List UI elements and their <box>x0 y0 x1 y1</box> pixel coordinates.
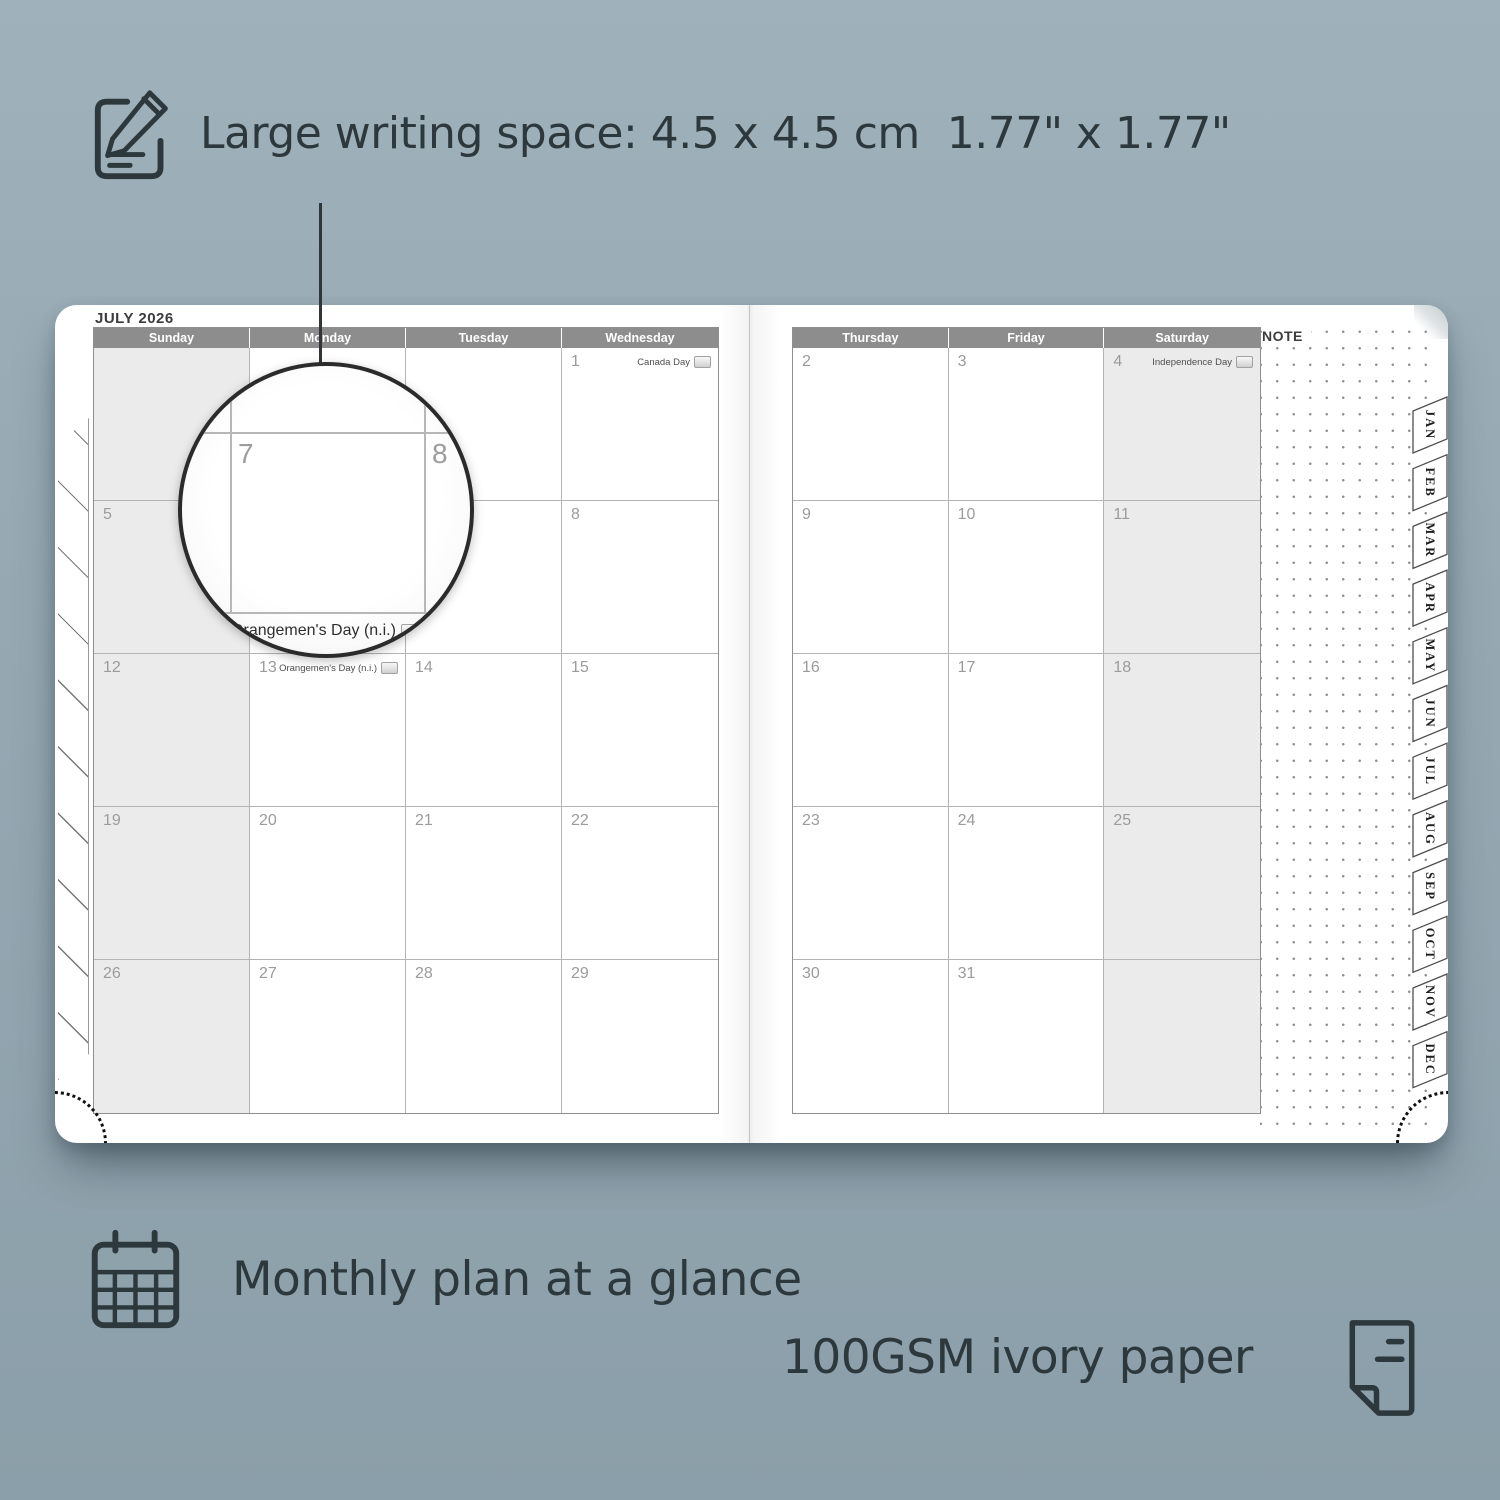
month-tab-label: SEP <box>1423 872 1437 901</box>
day-number: 28 <box>415 965 433 983</box>
day-number: 22 <box>571 812 589 830</box>
calendar-cell-25: 25 <box>1104 807 1260 960</box>
day-number: 13 <box>259 659 277 677</box>
calendar-cell-30: 30 <box>793 960 949 1113</box>
calendar-grid-right-page: ThursdayFridaySaturday234Independence Da… <box>792 327 1261 1114</box>
month-tab-label: JUN <box>1423 698 1437 728</box>
calendar-cell-3: 3 <box>949 348 1105 501</box>
calendar-cell-9: 9 <box>793 501 949 654</box>
calendar-cell-13: 13Orangemen's Day (n.i.) <box>250 654 406 807</box>
day-number: 5 <box>103 506 112 524</box>
day-number: 18 <box>1113 659 1131 677</box>
month-tab-label: AUG <box>1423 812 1437 846</box>
day-number: 12 <box>103 659 121 677</box>
day-header-monday: Monday <box>250 328 406 348</box>
calendar-cell-21: 21 <box>406 807 562 960</box>
calendar-grid-icon <box>85 1225 185 1333</box>
calendar-cell-14: 14 <box>406 654 562 807</box>
day-number: 16 <box>802 659 820 677</box>
magnified-cell-bottom-border <box>182 612 470 614</box>
holiday-text: Independence Day <box>1152 357 1232 368</box>
magnified-cell-top-border <box>182 432 470 434</box>
calendar-cell-2: 2 <box>793 348 949 501</box>
flag-badge-icon <box>401 624 421 638</box>
month-tab-label: JAN <box>1423 410 1437 440</box>
day-header-wednesday: Wednesday <box>562 328 718 348</box>
calendar-cell-26: 26 <box>94 960 250 1113</box>
calendar-cell-22: 22 <box>562 807 718 960</box>
day-number: 10 <box>958 506 976 524</box>
flag-badge-icon <box>694 356 711 368</box>
day-number: 31 <box>958 965 976 983</box>
flag-badge-icon <box>381 662 398 674</box>
feature-paper-text: 100GSM ivory paper <box>782 1330 1253 1385</box>
calendar-cell-23: 23 <box>793 807 949 960</box>
day-number: 21 <box>415 812 433 830</box>
paper-sheet-icon <box>1338 1312 1426 1424</box>
month-tab-label: APR <box>1423 582 1437 614</box>
magnified-holiday-text: Orangemen's Day (n.i.) <box>231 622 396 640</box>
calendar-cell-19: 19 <box>94 807 250 960</box>
calendar-cell-17: 17 <box>949 654 1105 807</box>
holiday-text: Canada Day <box>637 357 690 368</box>
day-number: 20 <box>259 812 277 830</box>
day-number: 9 <box>802 506 811 524</box>
day-header-saturday: Saturday <box>1104 328 1260 348</box>
day-number: 8 <box>571 506 580 524</box>
day-header-thursday: Thursday <box>793 328 949 348</box>
headline-writing-space: Large writing space: 4.5 x 4.5 cm 1.77" … <box>200 108 1231 159</box>
magnifier-circle: 7 8 Orangemen's Day (n.i.) <box>178 362 474 658</box>
magnified-cell-right-border <box>424 386 426 612</box>
calendar-cell-31: 31 <box>949 960 1105 1113</box>
day-number: 25 <box>1113 812 1131 830</box>
calendar-cell-empty <box>1104 960 1260 1113</box>
calendar-cell-8: 8 <box>562 501 718 654</box>
day-number: 15 <box>571 659 589 677</box>
day-number: 3 <box>958 353 967 371</box>
calendar-cell-1: 1Canada Day <box>562 348 718 501</box>
day-number: 1 <box>571 353 580 371</box>
callout-connector-line <box>319 203 322 366</box>
page-edge-hatching <box>58 418 89 1080</box>
calendar-cell-27: 27 <box>250 960 406 1113</box>
day-number: 4 <box>1113 353 1122 371</box>
month-tab-label: MAR <box>1423 522 1437 558</box>
calendar-cell-16: 16 <box>793 654 949 807</box>
magnified-cell-left-border <box>230 386 232 612</box>
flag-badge-icon <box>1236 356 1253 368</box>
calendar-cell-20: 20 <box>250 807 406 960</box>
day-number: 14 <box>415 659 433 677</box>
day-number: 30 <box>802 965 820 983</box>
calendar-cell-24: 24 <box>949 807 1105 960</box>
day-header-tuesday: Tuesday <box>406 328 562 348</box>
day-number: 11 <box>1113 506 1130 524</box>
day-header-sunday: Sunday <box>94 328 250 348</box>
holiday-label: Orangemen's Day (n.i.) <box>279 662 398 674</box>
month-tab-label: OCT <box>1423 928 1437 961</box>
feature-monthly-plan-text: Monthly plan at a glance <box>232 1252 802 1307</box>
holiday-text: Orangemen's Day (n.i.) <box>279 663 377 674</box>
day-number: 26 <box>103 965 121 983</box>
calendar-cell-11: 11 <box>1104 501 1260 654</box>
day-number: 29 <box>571 965 589 983</box>
magnified-holiday-label: Orangemen's Day (n.i.) <box>182 622 470 640</box>
holiday-label: Canada Day <box>637 356 711 368</box>
month-tab-label: NOV <box>1423 985 1437 1019</box>
spine-shading <box>719 305 781 1143</box>
month-tab-label: JUL <box>1423 756 1437 786</box>
day-number: 23 <box>802 812 820 830</box>
calendar-cell-29: 29 <box>562 960 718 1113</box>
month-tab-label: DEC <box>1423 1043 1437 1075</box>
magnified-day-number: 7 <box>238 438 254 470</box>
calendar-cell-12: 12 <box>94 654 250 807</box>
day-number: 19 <box>103 812 121 830</box>
month-title: JULY 2026 <box>95 310 174 327</box>
month-tab-label: MAY <box>1423 638 1437 673</box>
calendar-cell-18: 18 <box>1104 654 1260 807</box>
note-label: NOTE <box>1262 328 1311 346</box>
day-number: 24 <box>958 812 976 830</box>
month-tab-label: FEB <box>1423 468 1437 498</box>
spine-line <box>749 305 750 1143</box>
day-number: 2 <box>802 353 811 371</box>
calendar-cell-10: 10 <box>949 501 1105 654</box>
calendar-cell-28: 28 <box>406 960 562 1113</box>
magnified-day-number: 8 <box>432 438 448 470</box>
day-number: 27 <box>259 965 277 983</box>
note-dot-grid-area: NOTE <box>1260 326 1432 1129</box>
writing-note-pencil-icon <box>88 84 186 186</box>
day-number: 17 <box>958 659 976 677</box>
calendar-cell-15: 15 <box>562 654 718 807</box>
month-tabs-strip: JANFEBMARAPRMAYJUNJULAUGSEPOCTNOVDEC <box>1412 395 1448 1095</box>
day-header-friday: Friday <box>949 328 1105 348</box>
holiday-label: Independence Day <box>1152 356 1253 368</box>
calendar-cell-4: 4Independence Day <box>1104 348 1260 501</box>
